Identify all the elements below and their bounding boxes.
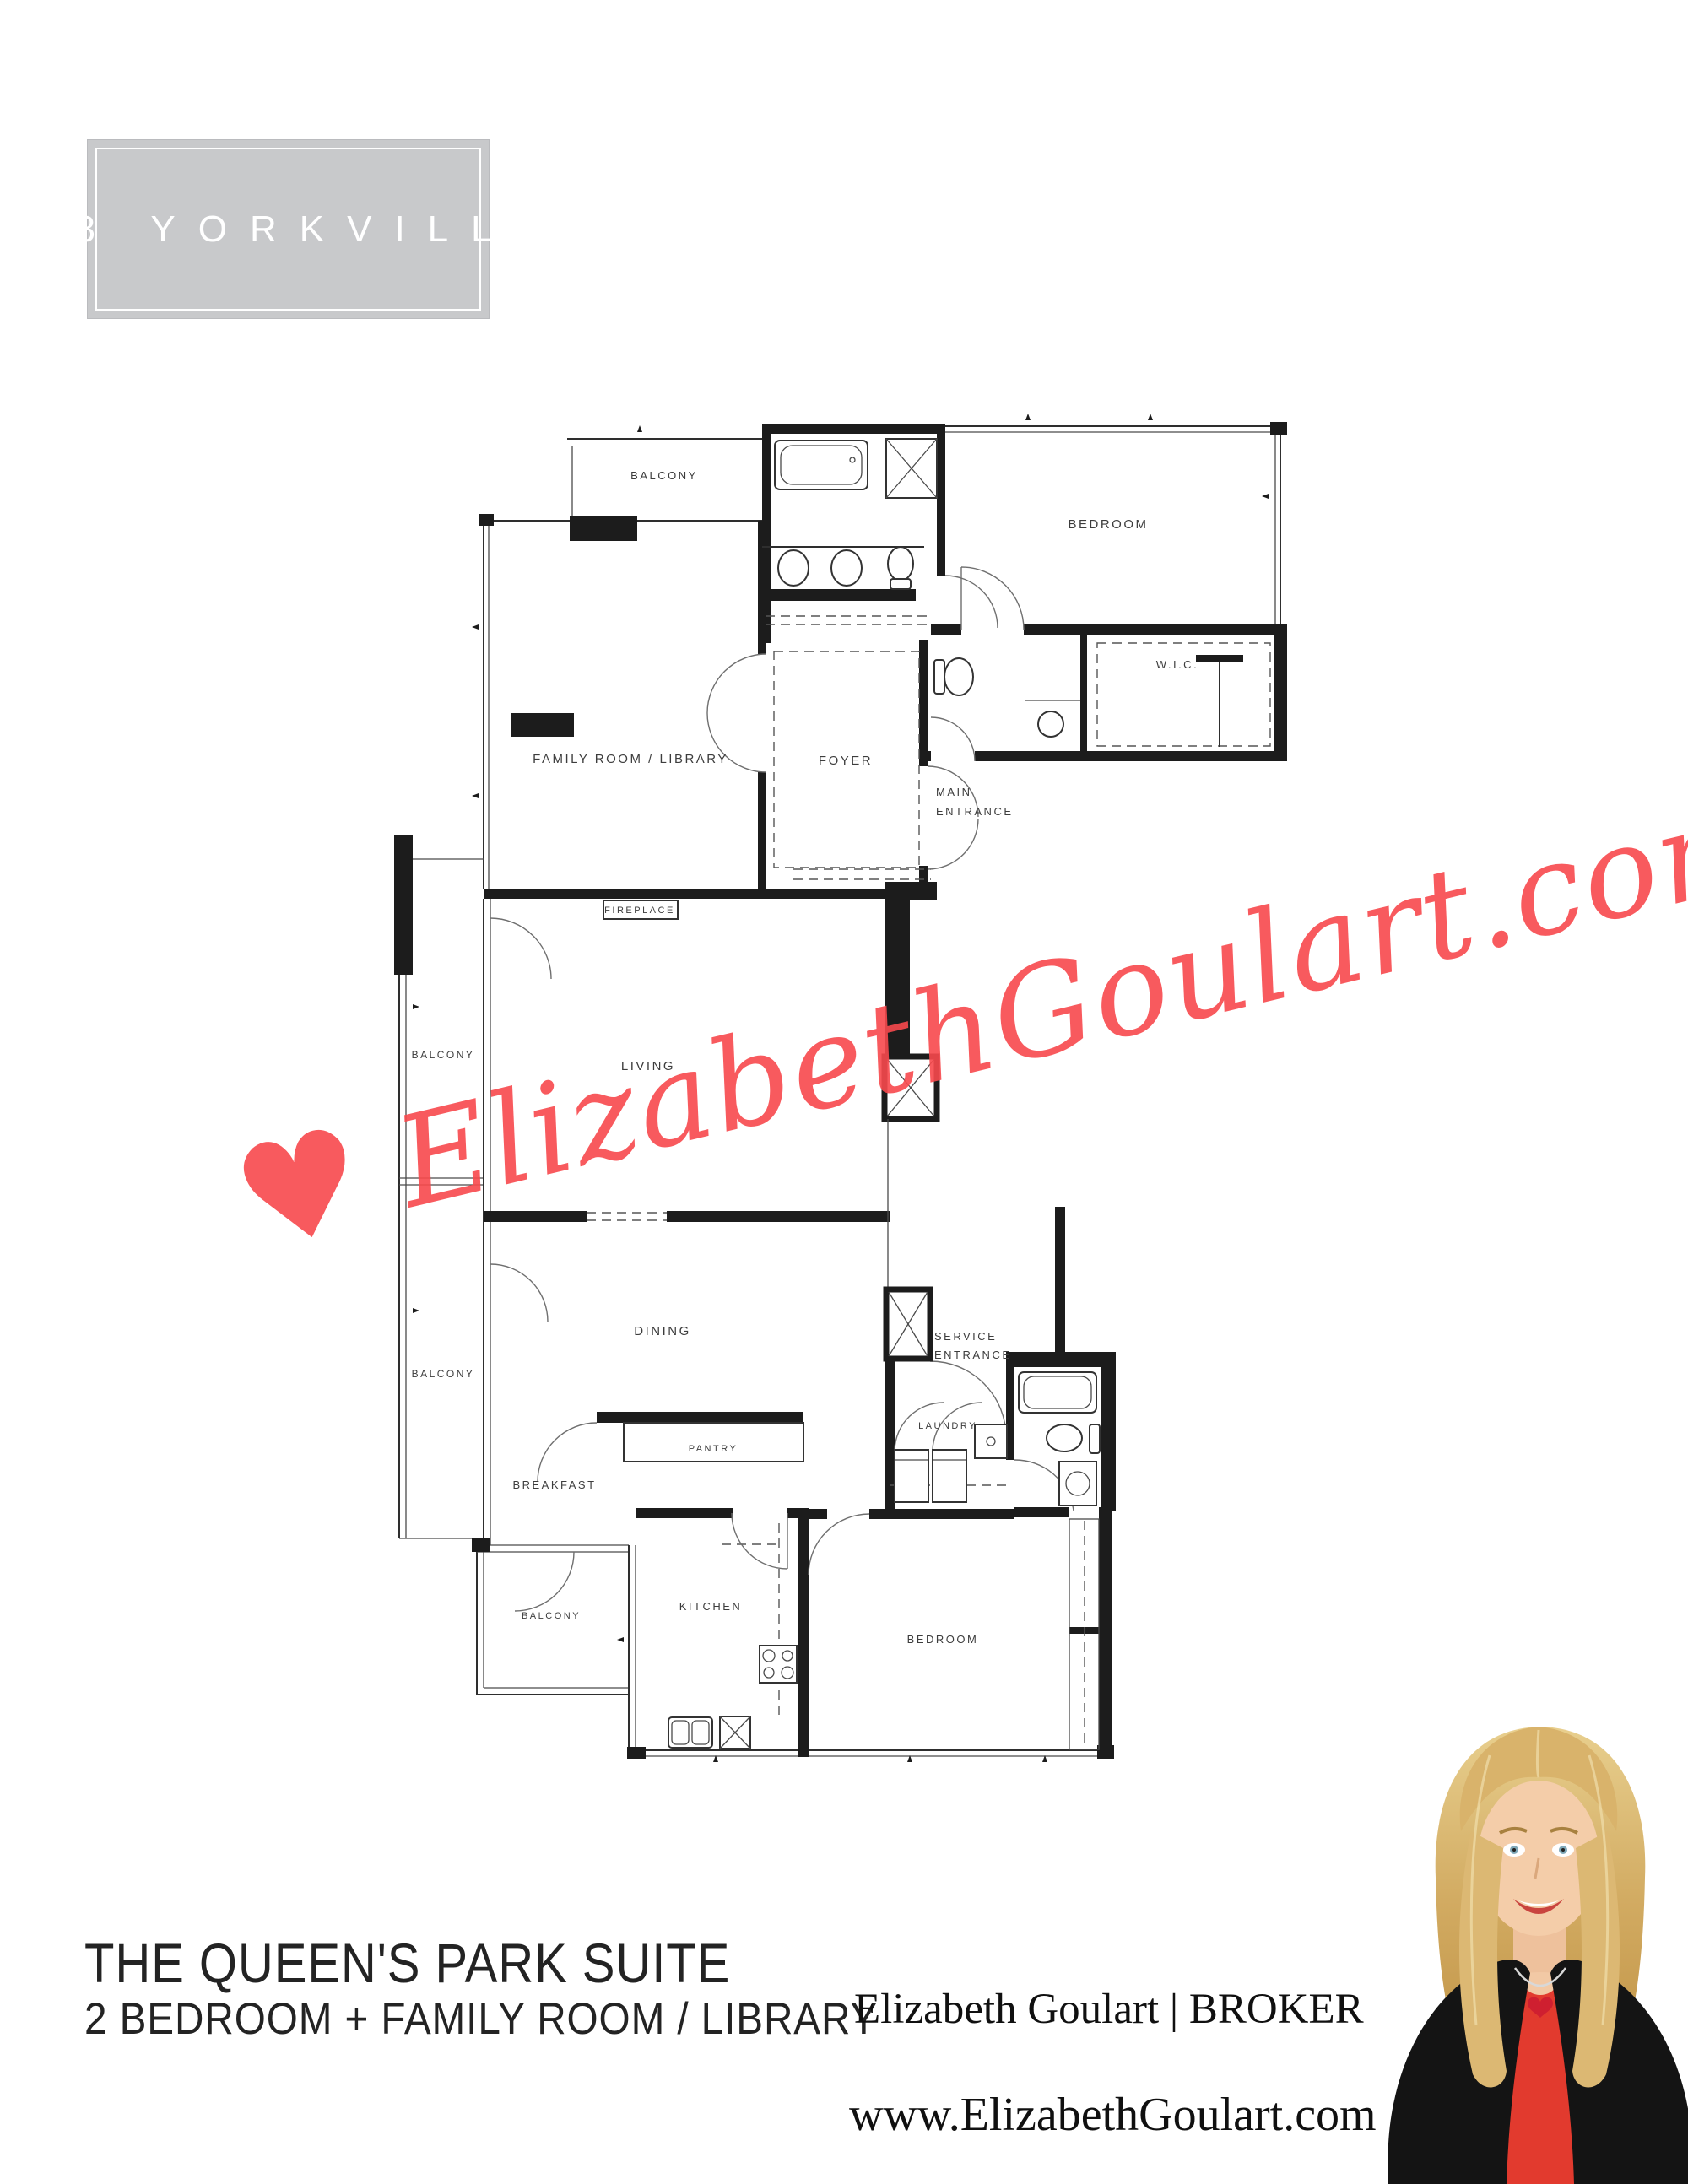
service-shaft-icon	[886, 1289, 930, 1359]
laundry-machines-icon	[895, 1450, 966, 1502]
powder-sink-icon	[1025, 700, 1080, 737]
window-tick-marks	[413, 414, 1269, 1762]
room-label-laundry: LAUNDRY	[918, 1421, 977, 1431]
room-label-breakfast: BREAKFAST	[512, 1479, 596, 1491]
toilet-top-icon	[888, 547, 913, 589]
floor-plan: BALCONY BEDROOM W.I.C. FAMILY ROOM / LIB…	[384, 414, 1304, 1764]
room-label-bedroom-top: BEDROOM	[1068, 517, 1148, 532]
toilet-bottom-icon	[1047, 1424, 1100, 1453]
room-label-foyer: FOYER	[819, 754, 873, 768]
website-url: www.ElizabethGoulart.com	[849, 2088, 1377, 2142]
broker-portrait	[1388, 1705, 1688, 2184]
room-label-living: LIVING	[621, 1059, 675, 1073]
powder-toilet-icon	[934, 658, 973, 695]
room-label-main-entrance-2: ENTRANCE	[936, 805, 1014, 818]
laundry-sink-icon	[975, 1424, 1007, 1458]
elevator-shaft-icon	[885, 1057, 937, 1119]
dishwasher-icon	[720, 1716, 750, 1749]
washer-bottom-icon	[1059, 1462, 1096, 1506]
bathtub-top-icon	[775, 441, 868, 489]
walls	[394, 422, 1287, 1759]
room-label-balcony-low: BALCONY	[412, 1368, 475, 1380]
room-label-fireplace: FIREPLACE	[604, 905, 675, 916]
room-label-main-entrance-1: MAIN	[936, 786, 972, 798]
suite-description: 2 BEDROOM + FAMILY ROOM / LIBRARY	[84, 1993, 878, 2045]
room-label-dining: DINING	[634, 1324, 691, 1338]
shower-top-icon	[886, 439, 937, 498]
suite-name: THE QUEEN'S PARK SUITE	[84, 1931, 730, 1995]
room-label-wic: W.I.C.	[1156, 658, 1198, 671]
building-name-box: 18 YORKVILLE	[87, 139, 490, 319]
room-label-bedroom-bottom: BEDROOM	[907, 1633, 979, 1646]
room-label-balcony-top: BALCONY	[630, 469, 698, 482]
dashed-lines	[587, 616, 1270, 1747]
room-label-balcony-bottom: BALCONY	[522, 1611, 581, 1621]
building-name-inner-frame: 18 YORKVILLE	[95, 148, 481, 311]
bathtub-bottom-icon	[1019, 1372, 1096, 1413]
broker-name: Elizabeth Goulart | BROKER	[854, 1985, 1364, 2034]
room-label-pantry: PANTRY	[689, 1444, 738, 1454]
building-name: 18 YORKVILLE	[14, 208, 562, 251]
heart-icon: ♥	[222, 1106, 379, 1273]
stove-icon	[760, 1646, 797, 1683]
room-label-service-entrance-1: SERVICE	[934, 1330, 997, 1343]
pantry-box	[624, 1423, 803, 1462]
room-label-service-entrance-2: ENTRANCE	[934, 1349, 1012, 1361]
room-label-family-room: FAMILY ROOM / LIBRARY	[533, 752, 728, 766]
kitchen-sink-icon	[668, 1717, 712, 1748]
room-label-balcony-mid: BALCONY	[412, 1049, 475, 1061]
room-label-kitchen: KITCHEN	[679, 1600, 743, 1613]
